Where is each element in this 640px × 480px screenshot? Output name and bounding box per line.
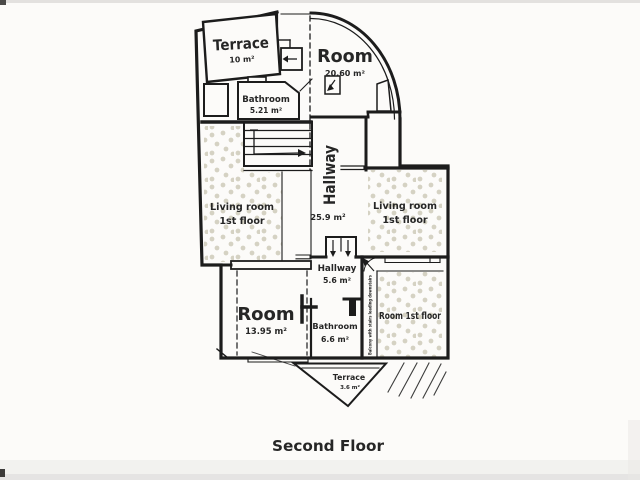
hallway-lower-area: 5.6 m² <box>323 276 351 285</box>
floor-plan-drawing: Terrace 10 m² Bathroom 5.21 m² Room 20.6… <box>0 0 640 480</box>
bathroom-top-label: Bathroom <box>242 95 290 105</box>
scan-artifacts <box>0 0 640 480</box>
room-lower-left-area: 13.95 m² <box>245 326 287 336</box>
floor-plan-page: Terrace 10 m² Bathroom 5.21 m² Room 20.6… <box>0 0 640 480</box>
terrace-door-arrow-icon <box>281 48 302 70</box>
closet-box <box>204 84 228 116</box>
terrace-top-label: Terrace <box>213 34 270 55</box>
terrace-top-area: 10 m² <box>229 54 255 64</box>
balcony-note: Balcony with stairs leading downstairs <box>368 275 374 355</box>
room-lower-left-label: Room <box>237 304 294 325</box>
door-jamb <box>349 300 356 316</box>
bathroom-lower-label: Bathroom <box>312 321 357 331</box>
living-room-left-label: Living room <box>210 202 274 213</box>
living-room-right-sublabel: 1st floor <box>382 215 428 226</box>
bathroom-door-arrow-icon <box>325 76 340 94</box>
hallway-main-area: 25.9 m² <box>310 212 346 222</box>
terrace-lower-area: 3.6 m² <box>340 384 360 391</box>
wall-band <box>231 261 311 269</box>
living-room-left-sublabel: 1st floor <box>219 216 265 227</box>
room-lower-right-label: Room 1st floor <box>379 311 441 322</box>
living-room-right-label: Living room <box>373 201 437 212</box>
page-title: Second Floor <box>272 437 384 455</box>
scan-corner-mark <box>0 0 6 5</box>
scan-corner-mark <box>0 469 5 477</box>
hallway-lower-label: Hallway <box>318 264 357 274</box>
room-round-label: Room <box>317 47 373 67</box>
hallway-main-label: Hallway <box>320 145 339 205</box>
radiator <box>377 80 391 111</box>
room-round-area: 20.60 m² <box>325 69 365 78</box>
terrace-lower-label: Terrace <box>333 373 365 382</box>
bathroom-lower-area: 6.6 m² <box>321 335 349 344</box>
bathroom-top-area: 5.21 m² <box>250 106 282 115</box>
